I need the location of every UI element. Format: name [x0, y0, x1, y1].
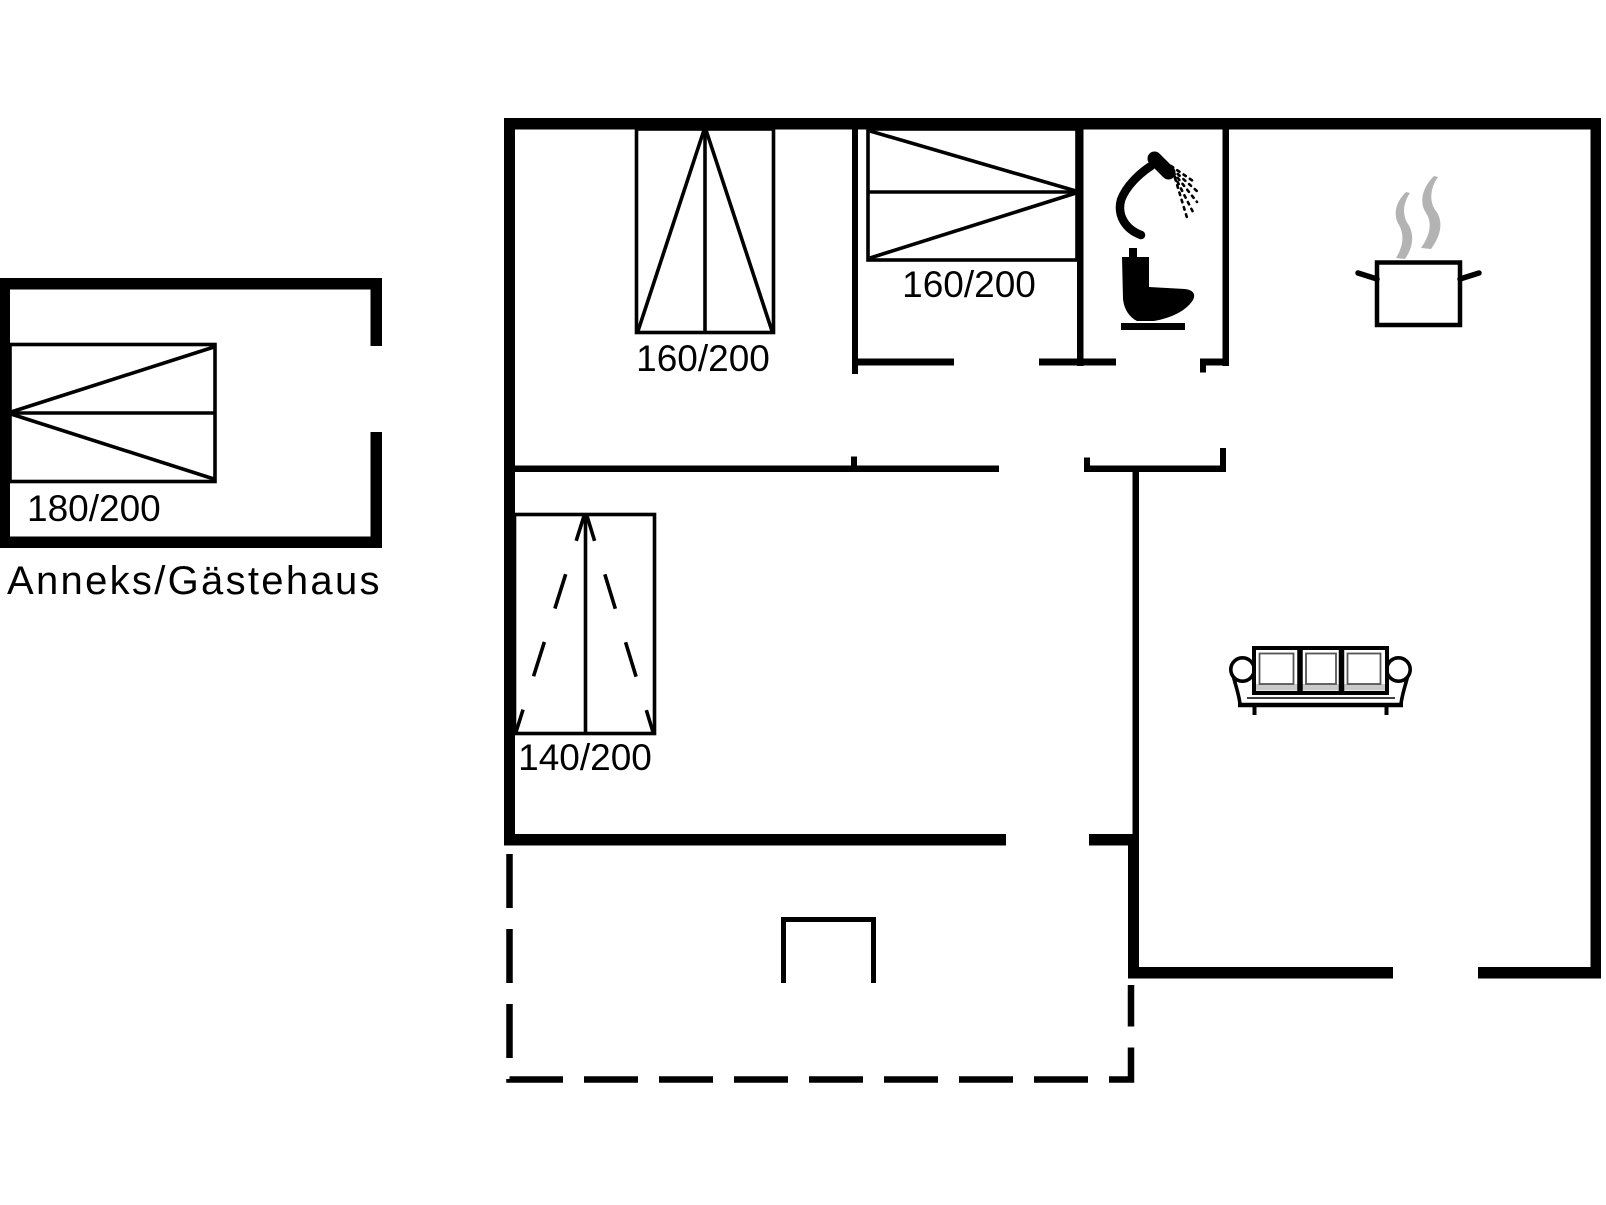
svg-text:Anneks/Gästehaus: Anneks/Gästehaus	[7, 559, 382, 603]
svg-text:160/200: 160/200	[902, 264, 1036, 305]
svg-text:160/200: 160/200	[636, 338, 770, 379]
svg-text:140/200: 140/200	[518, 737, 652, 778]
svg-text:180/200: 180/200	[27, 488, 161, 529]
